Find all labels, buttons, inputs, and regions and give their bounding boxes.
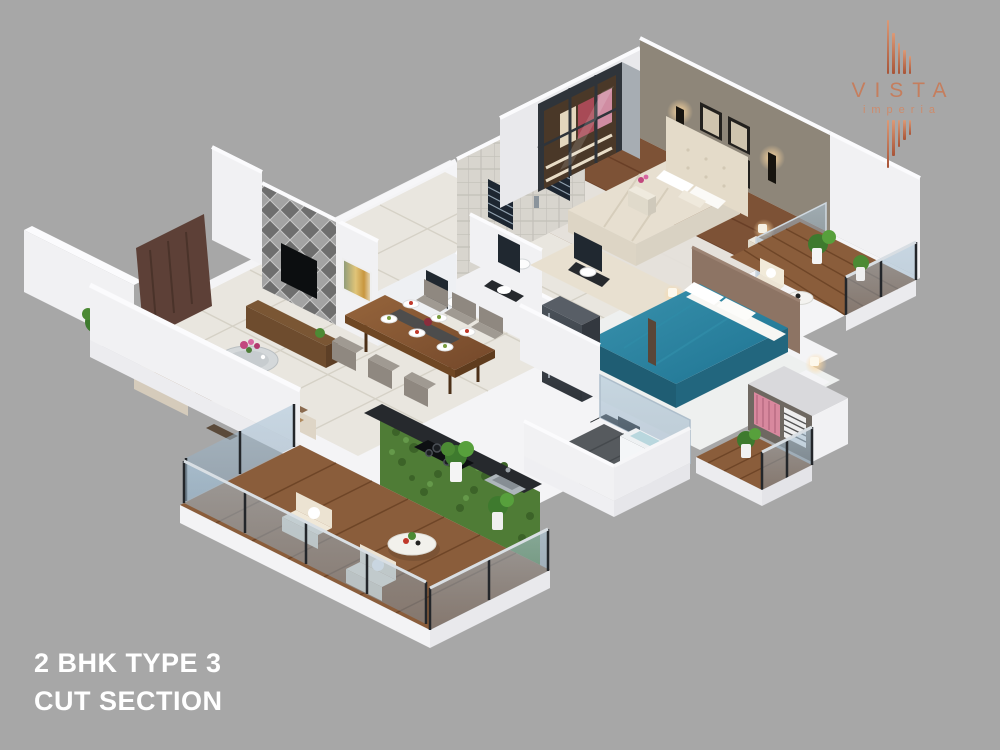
console-plant-icon: [315, 328, 325, 338]
lamp-icon: [810, 357, 819, 366]
food: [443, 344, 447, 348]
flower-icon: [638, 177, 644, 183]
plant-pot: [741, 444, 751, 458]
food: [409, 301, 413, 305]
table-item: [416, 541, 421, 546]
brand-logo: VISTA imperia: [824, 20, 974, 168]
chair-pillow: [766, 268, 776, 278]
lamp-icon: [668, 288, 677, 297]
plant-pot: [812, 248, 822, 264]
door-frame: [648, 318, 656, 366]
table-plant-icon: [408, 532, 416, 540]
caption-line2: CUT SECTION: [34, 682, 223, 720]
plant-pot: [450, 462, 462, 482]
flower-icon: [240, 341, 248, 349]
brand-subtitle: imperia: [824, 104, 974, 116]
plant-foliage-icon: [822, 230, 836, 244]
food: [387, 316, 391, 320]
washbasin-icon: [497, 286, 511, 294]
food: [465, 329, 469, 333]
caption-line1: 2 BHK TYPE 3: [34, 644, 223, 682]
faucet-icon: [506, 468, 511, 473]
wardrobe-side-panel: [622, 62, 640, 159]
brand-name: VISTA: [824, 79, 974, 103]
centerpiece: [424, 318, 432, 326]
plant-pot: [856, 267, 865, 281]
food: [437, 315, 441, 319]
plant-foliage-icon: [749, 428, 761, 440]
cup: [261, 355, 265, 359]
leaf-icon: [246, 347, 252, 353]
flower-icon: [254, 343, 260, 349]
plant-pot: [492, 512, 503, 530]
chair-pillow: [308, 507, 320, 519]
logo-spire-top-icon: [824, 20, 974, 74]
logo-spire-bottom-icon: [824, 120, 974, 168]
shower-icon: [534, 196, 539, 208]
plant-foliage-icon: [441, 442, 455, 456]
plant-foliage-icon: [500, 493, 514, 507]
sconce-icon: [768, 152, 776, 184]
lamp-icon: [758, 224, 767, 233]
plant-foliage-icon: [458, 441, 474, 457]
table-item: [403, 538, 409, 544]
food: [415, 330, 419, 334]
flower-icon: [644, 175, 649, 180]
caption: 2 BHK TYPE 3 CUT SECTION: [34, 644, 223, 720]
flower-icon: [248, 339, 254, 345]
washbasin-icon: [580, 268, 596, 277]
